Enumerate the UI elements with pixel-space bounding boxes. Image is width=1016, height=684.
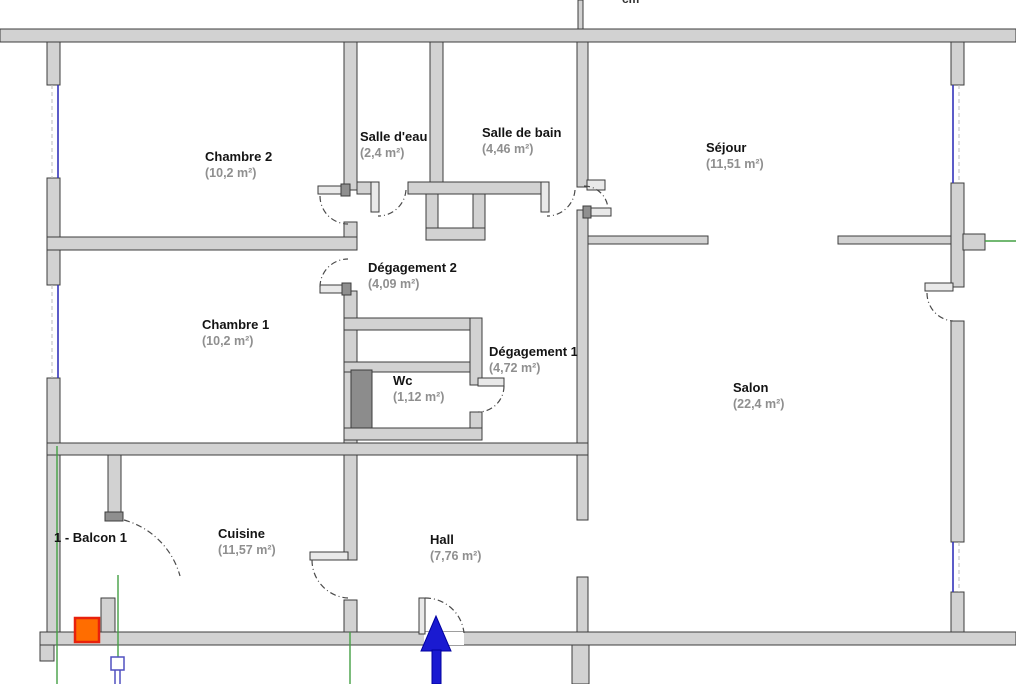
door-sejour[interactable]	[583, 180, 611, 218]
door-hinge-cap	[105, 512, 123, 521]
floor-plan-canvas: cm Chambre 2 (10,2 m²) Salle d'eau (2,4 …	[0, 0, 1016, 684]
wall-segment[interactable]	[101, 598, 115, 632]
room-label-chambre-2: Chambre 2 (10,2 m²)	[205, 148, 272, 182]
selection-square[interactable]	[75, 618, 99, 642]
wall-segment[interactable]	[47, 443, 588, 455]
arrow-shaft	[432, 650, 441, 684]
door-hinge-cap	[342, 283, 351, 295]
room-area: (7,76 m²)	[430, 548, 481, 565]
wall-segment[interactable]	[572, 645, 589, 684]
wall-segment[interactable]	[470, 318, 482, 385]
door-hinge-cap	[583, 206, 591, 218]
room-label-degagement-1: Dégagement 1 (4,72 m²)	[489, 343, 578, 377]
room-name: Salle d'eau	[360, 129, 427, 144]
wall-axis-line[interactable]	[578, 0, 583, 29]
window-chambre-1[interactable]	[52, 285, 58, 378]
door-salle-deau[interactable]	[371, 182, 406, 216]
wall-stub-exterior[interactable]	[963, 234, 985, 250]
room-label-cuisine: Cuisine (11,57 m²)	[218, 525, 276, 559]
wall-segment[interactable]	[344, 42, 357, 190]
floor-plan-drawing	[0, 0, 1016, 684]
duct-wall[interactable]	[426, 228, 485, 240]
door-leaf[interactable]	[541, 182, 549, 212]
wall-segment[interactable]	[344, 318, 482, 330]
wall-segment[interactable]	[47, 378, 60, 632]
room-label-salle-deau: Salle d'eau (2,4 m²)	[360, 128, 427, 162]
door-swing-arc	[312, 560, 348, 598]
wall-segment[interactable]	[40, 632, 1016, 645]
wc-fixture-block[interactable]	[351, 370, 372, 428]
room-area: (10,2 m²)	[205, 165, 272, 182]
room-name: Cuisine	[218, 526, 265, 541]
room-area: (1,12 m²)	[393, 389, 444, 406]
wall-segment[interactable]	[577, 42, 588, 187]
door-swing-arc	[124, 520, 180, 576]
radiator-box[interactable]	[111, 657, 124, 670]
wall-segment[interactable]	[344, 455, 357, 560]
wall-segment[interactable]	[40, 645, 54, 661]
door-jamb-stub	[587, 180, 605, 190]
wall-segment[interactable]	[0, 29, 1016, 42]
door-salle-de-bain[interactable]	[541, 182, 575, 216]
door-chambre-1[interactable]	[320, 259, 351, 295]
room-area: (11,51 m²)	[706, 156, 764, 173]
door-leaf[interactable]	[478, 378, 504, 386]
room-area: (4,46 m²)	[482, 141, 561, 158]
door-swing-arc	[927, 293, 953, 321]
wall-segment[interactable]	[588, 236, 708, 244]
room-name: Chambre 2	[205, 149, 272, 164]
room-label-salle-de-bain: Salle de bain (4,46 m²)	[482, 124, 561, 158]
room-label-hall: Hall (7,76 m²)	[430, 531, 481, 565]
wall-segment[interactable]	[951, 42, 964, 85]
room-name: Dégagement 2	[368, 260, 457, 275]
unit-label: cm	[622, 0, 639, 6]
door-leaf[interactable]	[925, 283, 953, 291]
door-hinge-cap	[341, 184, 350, 196]
balcony-label: 1 - Balcon 1	[54, 530, 127, 545]
room-name: Wc	[393, 373, 413, 388]
door-swing-arc	[378, 190, 406, 216]
room-label-wc: Wc (1,12 m²)	[393, 372, 444, 406]
radiator-symbol[interactable]	[111, 657, 124, 684]
room-area: (11,57 m²)	[218, 542, 276, 559]
walls	[0, 0, 1016, 684]
selected-object-square[interactable]	[75, 618, 99, 642]
wall-segment[interactable]	[47, 42, 60, 85]
wall-segment[interactable]	[577, 210, 588, 445]
door-swing-arc	[478, 386, 504, 412]
room-name: Hall	[430, 532, 454, 547]
room-label-sejour: Séjour (11,51 m²)	[706, 139, 764, 173]
guide-lines	[57, 241, 1016, 684]
room-name: Séjour	[706, 140, 746, 155]
door-leaf[interactable]	[419, 598, 425, 634]
room-name: Salon	[733, 380, 768, 395]
windows	[52, 85, 959, 592]
wall-segment[interactable]	[951, 183, 964, 287]
wall-segment[interactable]	[47, 178, 60, 285]
room-area: (2,4 m²)	[360, 145, 427, 162]
door-wc[interactable]	[478, 378, 504, 412]
wall-segment[interactable]	[108, 455, 121, 512]
room-area: (4,09 m²)	[368, 276, 457, 293]
room-name: Dégagement 1	[489, 344, 578, 359]
room-area: (10,2 m²)	[202, 333, 269, 350]
wall-segment[interactable]	[951, 592, 964, 632]
wall-segment[interactable]	[408, 182, 548, 194]
wall-segment[interactable]	[344, 428, 482, 440]
wall-segment[interactable]	[577, 577, 588, 632]
door-salon-terrasse[interactable]	[925, 283, 953, 321]
wall-segment[interactable]	[344, 600, 357, 632]
door-leaf[interactable]	[310, 552, 348, 560]
room-label-degagement-2: Dégagement 2 (4,09 m²)	[368, 259, 457, 293]
room-area: (4,72 m²)	[489, 360, 578, 377]
room-name: Chambre 1	[202, 317, 269, 332]
wall-segment[interactable]	[838, 236, 951, 244]
door-cuisine[interactable]	[310, 552, 348, 598]
window-salon[interactable]	[953, 542, 959, 592]
wall-segment[interactable]	[430, 42, 443, 194]
door-swing-arc	[547, 190, 575, 216]
room-label-salon: Salon (22,4 m²)	[733, 379, 784, 413]
wall-segment[interactable]	[577, 455, 588, 520]
window-chambre-2[interactable]	[52, 85, 58, 178]
room-label-chambre-1: Chambre 1 (10,2 m²)	[202, 316, 269, 350]
door-swing-arc	[320, 196, 348, 224]
window-sejour[interactable]	[953, 85, 959, 183]
door-chambre-2[interactable]	[318, 184, 350, 224]
room-name: Salle de bain	[482, 125, 561, 140]
door-leaf[interactable]	[371, 182, 379, 212]
wall-segment[interactable]	[47, 237, 357, 250]
room-area: (22,4 m²)	[733, 396, 784, 413]
wall-segment[interactable]	[951, 321, 964, 542]
